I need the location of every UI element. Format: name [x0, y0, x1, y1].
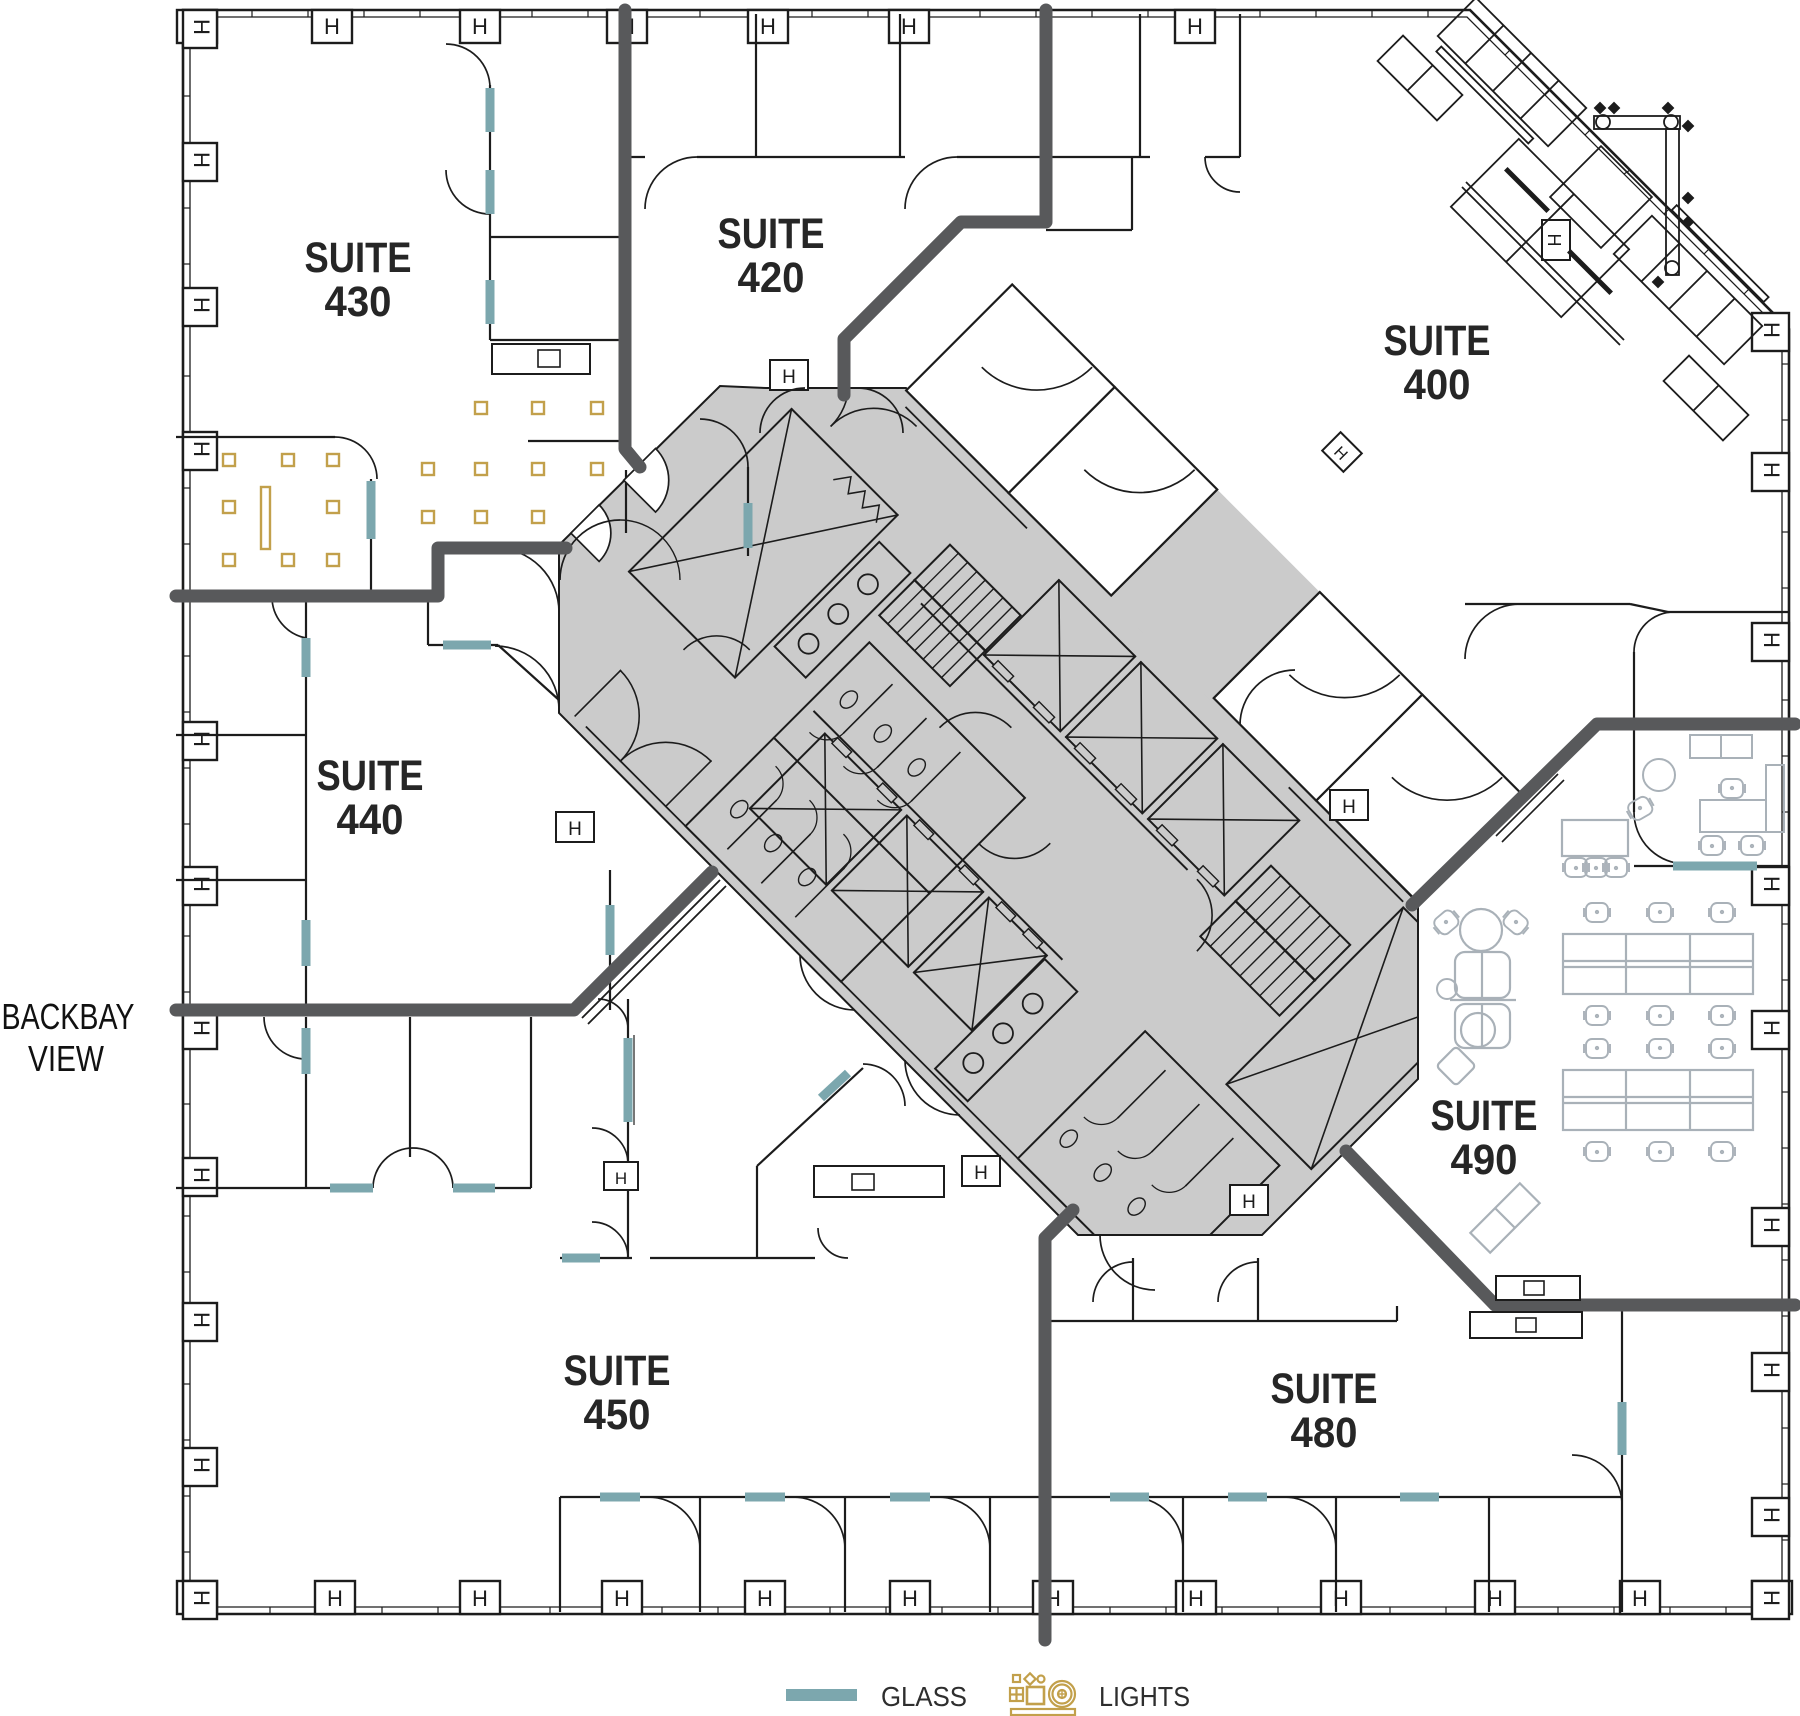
svg-text:400: 400 [1404, 361, 1471, 409]
svg-text:SUITE: SUITE [1431, 1092, 1538, 1140]
svg-text:VIEW: VIEW [28, 1038, 104, 1079]
svg-text:H: H [189, 1312, 214, 1328]
svg-text:SUITE: SUITE [718, 210, 825, 258]
svg-text:H: H [1242, 1192, 1256, 1213]
svg-text:H: H [568, 819, 582, 840]
svg-text:H: H [901, 14, 917, 39]
svg-text:440: 440 [337, 796, 404, 844]
svg-text:SUITE: SUITE [1271, 1365, 1378, 1413]
svg-text:H: H [324, 14, 340, 39]
svg-text:H: H [1188, 1586, 1204, 1611]
svg-text:GLASS: GLASS [881, 1681, 967, 1712]
svg-text:H: H [1759, 322, 1784, 338]
svg-text:H: H [1759, 1362, 1784, 1378]
svg-text:H: H [472, 14, 488, 39]
svg-text:H: H [189, 876, 214, 892]
svg-text:H: H [189, 1167, 214, 1183]
svg-text:H: H [1759, 1507, 1784, 1523]
svg-text:H: H [189, 297, 214, 313]
svg-text:SUITE: SUITE [305, 234, 412, 282]
svg-text:H: H [614, 1586, 630, 1611]
svg-text:H: H [189, 1590, 214, 1606]
svg-text:H: H [1759, 1590, 1784, 1606]
svg-text:H: H [760, 14, 776, 39]
svg-text:H: H [472, 1586, 488, 1611]
svg-text:H: H [1342, 797, 1356, 818]
svg-text:480: 480 [1291, 1409, 1358, 1457]
svg-text:H: H [1759, 462, 1784, 478]
svg-text:H: H [1759, 1020, 1784, 1036]
svg-text:SUITE: SUITE [564, 1347, 671, 1395]
svg-text:H: H [189, 152, 214, 168]
svg-text:BACKBAY: BACKBAY [2, 996, 135, 1037]
svg-text:H: H [189, 441, 214, 457]
svg-text:H: H [1759, 876, 1784, 892]
svg-text:490: 490 [1451, 1136, 1518, 1184]
svg-text:450: 450 [584, 1391, 651, 1439]
svg-text:SUITE: SUITE [317, 752, 424, 800]
svg-text:H: H [902, 1586, 918, 1611]
svg-text:H: H [1759, 632, 1784, 648]
svg-text:H: H [615, 1169, 627, 1188]
svg-text:H: H [327, 1586, 343, 1611]
svg-text:H: H [189, 731, 214, 747]
svg-text:H: H [757, 1586, 773, 1611]
svg-text:LIGHTS: LIGHTS [1099, 1681, 1190, 1712]
svg-text:H: H [1759, 1217, 1784, 1233]
svg-text:H: H [189, 1020, 214, 1036]
svg-text:H: H [189, 19, 214, 35]
svg-text:H: H [782, 367, 796, 388]
svg-text:SUITE: SUITE [1384, 317, 1491, 365]
svg-text:H: H [1544, 234, 1564, 247]
svg-text:H: H [1187, 14, 1203, 39]
svg-text:H: H [974, 1163, 988, 1184]
svg-text:H: H [189, 1457, 214, 1473]
svg-text:430: 430 [325, 278, 392, 326]
svg-text:420: 420 [738, 254, 805, 302]
svg-text:H: H [1632, 1586, 1648, 1611]
